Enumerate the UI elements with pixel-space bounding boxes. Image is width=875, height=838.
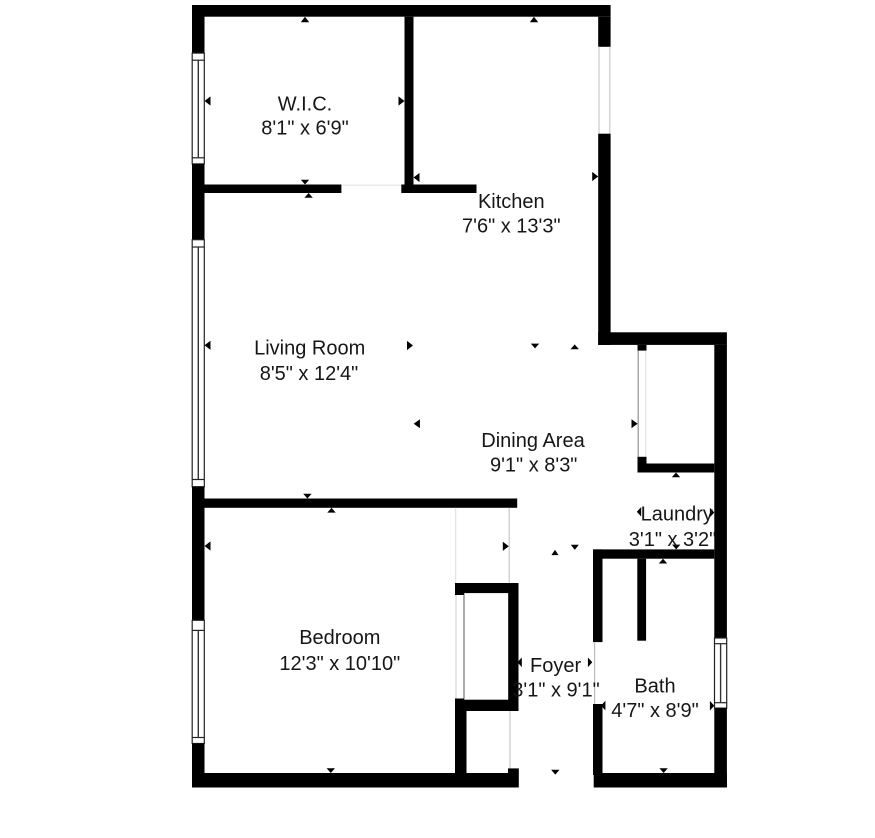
svg-text:Living Room: Living Room [254,338,365,360]
svg-text:Bedroom: Bedroom [299,627,380,649]
svg-text:Laundry: Laundry [641,504,713,526]
svg-text:7'6" x 13'3": 7'6" x 13'3" [462,215,561,237]
svg-text:8'1" x 6'9": 8'1" x 6'9" [261,117,348,139]
svg-text:8'5" x 12'4": 8'5" x 12'4" [260,363,359,385]
svg-text:3'1" x 9'1": 3'1" x 9'1" [512,680,599,702]
svg-text:Dining Area: Dining Area [481,430,585,452]
svg-text:12'3" x 10'10": 12'3" x 10'10" [279,653,400,675]
svg-text:Foyer: Foyer [530,655,581,677]
svg-text:9'1" x 8'3": 9'1" x 8'3" [490,455,577,477]
svg-text:Bath: Bath [634,675,675,697]
svg-text:3'1" x 3'2": 3'1" x 3'2" [629,529,716,551]
svg-text:Kitchen: Kitchen [478,191,545,213]
svg-text:4'7" x 8'9": 4'7" x 8'9" [611,700,698,722]
svg-text:W.I.C.: W.I.C. [278,94,332,116]
